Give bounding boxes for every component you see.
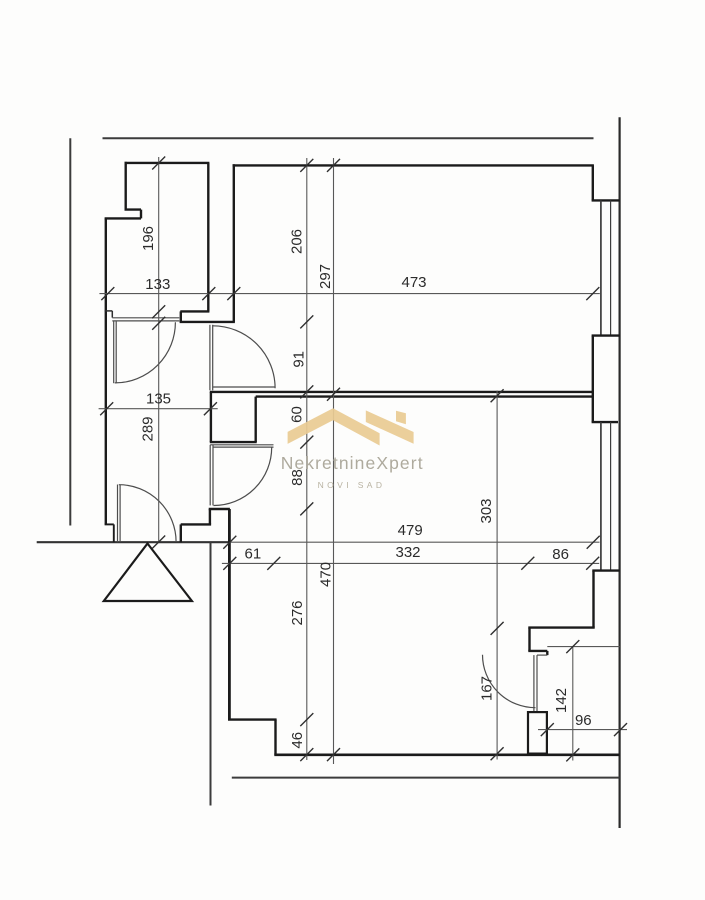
svg-text:297: 297 xyxy=(317,264,334,289)
svg-text:60: 60 xyxy=(289,406,306,423)
svg-text:289: 289 xyxy=(140,416,157,441)
svg-text:NekretnineXpert: NekretnineXpert xyxy=(281,453,424,473)
svg-text:NOVI SAD: NOVI SAD xyxy=(318,480,386,490)
svg-text:142: 142 xyxy=(553,688,570,713)
svg-text:135: 135 xyxy=(146,390,171,407)
svg-text:196: 196 xyxy=(140,226,157,251)
svg-text:133: 133 xyxy=(145,276,170,293)
svg-text:167: 167 xyxy=(479,676,496,701)
svg-text:276: 276 xyxy=(289,600,306,625)
svg-text:96: 96 xyxy=(575,712,592,729)
svg-text:91: 91 xyxy=(291,351,308,368)
svg-text:46: 46 xyxy=(289,732,306,749)
svg-text:61: 61 xyxy=(245,546,262,563)
svg-text:470: 470 xyxy=(317,562,334,587)
svg-text:332: 332 xyxy=(395,544,420,561)
svg-text:303: 303 xyxy=(478,498,495,523)
svg-text:206: 206 xyxy=(288,229,305,254)
svg-text:86: 86 xyxy=(552,546,569,563)
svg-text:473: 473 xyxy=(401,274,426,291)
svg-text:479: 479 xyxy=(398,522,423,539)
